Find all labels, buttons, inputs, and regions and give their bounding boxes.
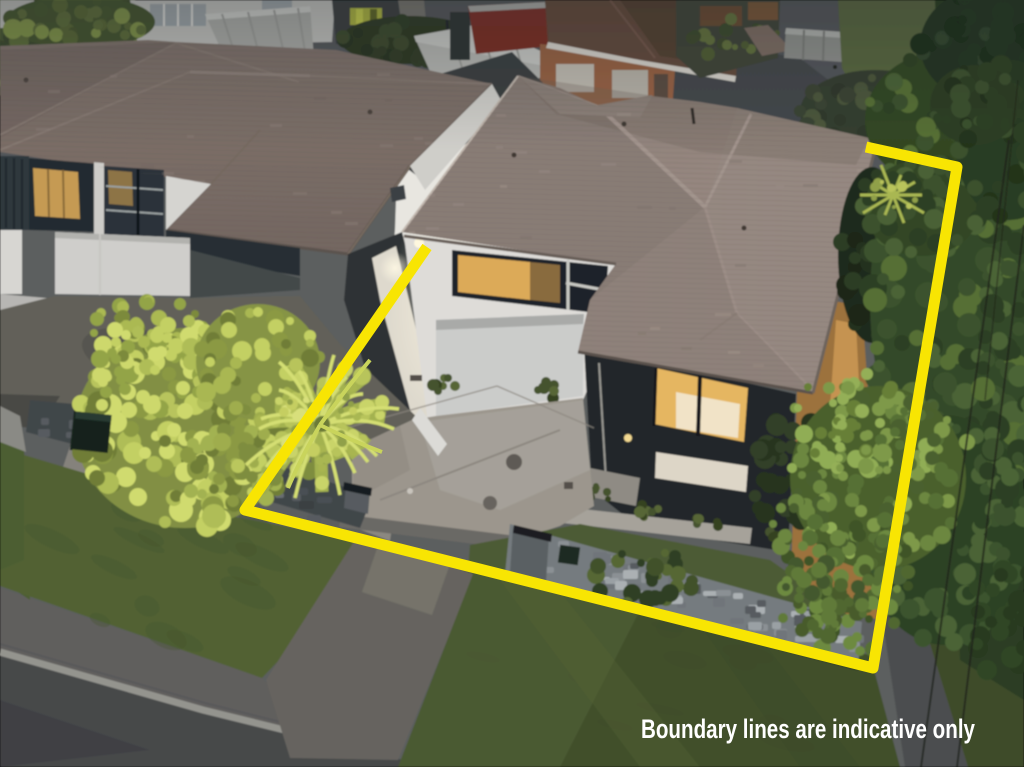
- svg-text:Boundary lines are indicative: Boundary lines are indicative only: [641, 714, 975, 744]
